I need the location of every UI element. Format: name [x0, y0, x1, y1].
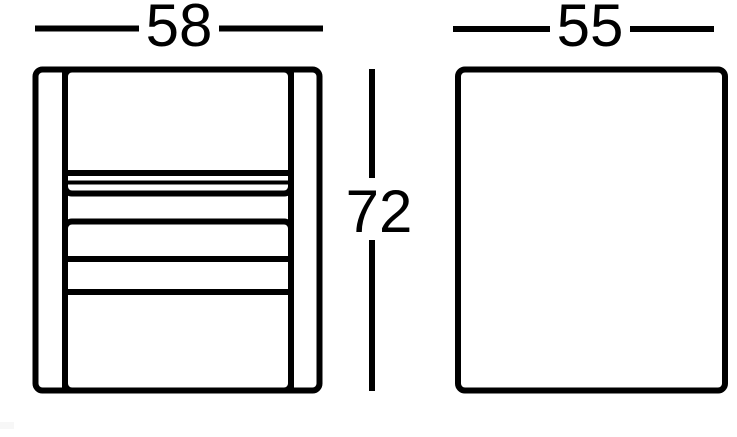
- side-view-outline: [458, 70, 725, 391]
- height-dim-label: 72: [346, 178, 413, 245]
- front-width-dimension: 58: [35, 0, 323, 59]
- side-view: [458, 70, 725, 391]
- side-depth-dimension: 55: [453, 0, 714, 59]
- height-dimension: 72: [346, 69, 413, 391]
- front-width-dim-label: 58: [146, 0, 213, 59]
- front-seat-panel: [65, 222, 291, 391]
- scan-artifact: [0, 422, 14, 429]
- front-view: [36, 68, 320, 391]
- side-depth-dim-label: 55: [557, 0, 624, 59]
- dimension-diagram: 58 55 72: [0, 0, 737, 437]
- dimension-diagram-svg: 58 55 72: [0, 0, 737, 437]
- front-view-outline: [36, 70, 320, 391]
